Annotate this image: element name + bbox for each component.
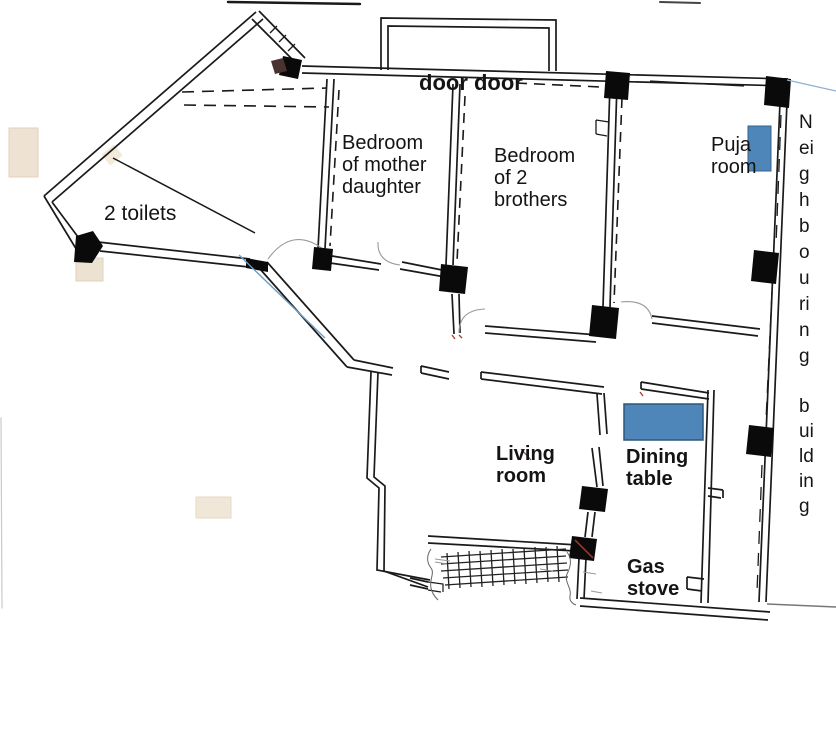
staircase — [428, 546, 576, 605]
floor-plan-page: door door 2 toilets Bedroom of mother da… — [0, 0, 836, 750]
label-bedroom-brothers: Bedroom of 2 brothers — [494, 145, 575, 211]
dashed-walls — [182, 83, 781, 592]
floor-plan-drawing — [0, 0, 836, 750]
label-bedroom-mother: Bedroom of mother daughter — [342, 132, 426, 198]
label-2-toilets: 2 toilets — [104, 203, 176, 226]
label-neighbouring: N ei g h b o u ri n g — [799, 110, 814, 370]
dining-table-rect — [624, 404, 703, 440]
label-door-door: door door — [419, 71, 523, 95]
door-arc — [459, 309, 485, 333]
label-living-room: Living room — [496, 443, 555, 487]
door-arc — [621, 302, 652, 319]
door-arc — [378, 242, 400, 265]
label-dining-table: Dining table — [626, 446, 688, 490]
label-building: b ui ld in g — [799, 394, 814, 519]
label-gas-stove: Gas stove — [627, 556, 679, 600]
scan-tape-patches — [9, 128, 231, 518]
label-puja-room: Puja room — [711, 134, 757, 178]
boundary-line — [767, 604, 836, 607]
walls — [44, 11, 788, 620]
